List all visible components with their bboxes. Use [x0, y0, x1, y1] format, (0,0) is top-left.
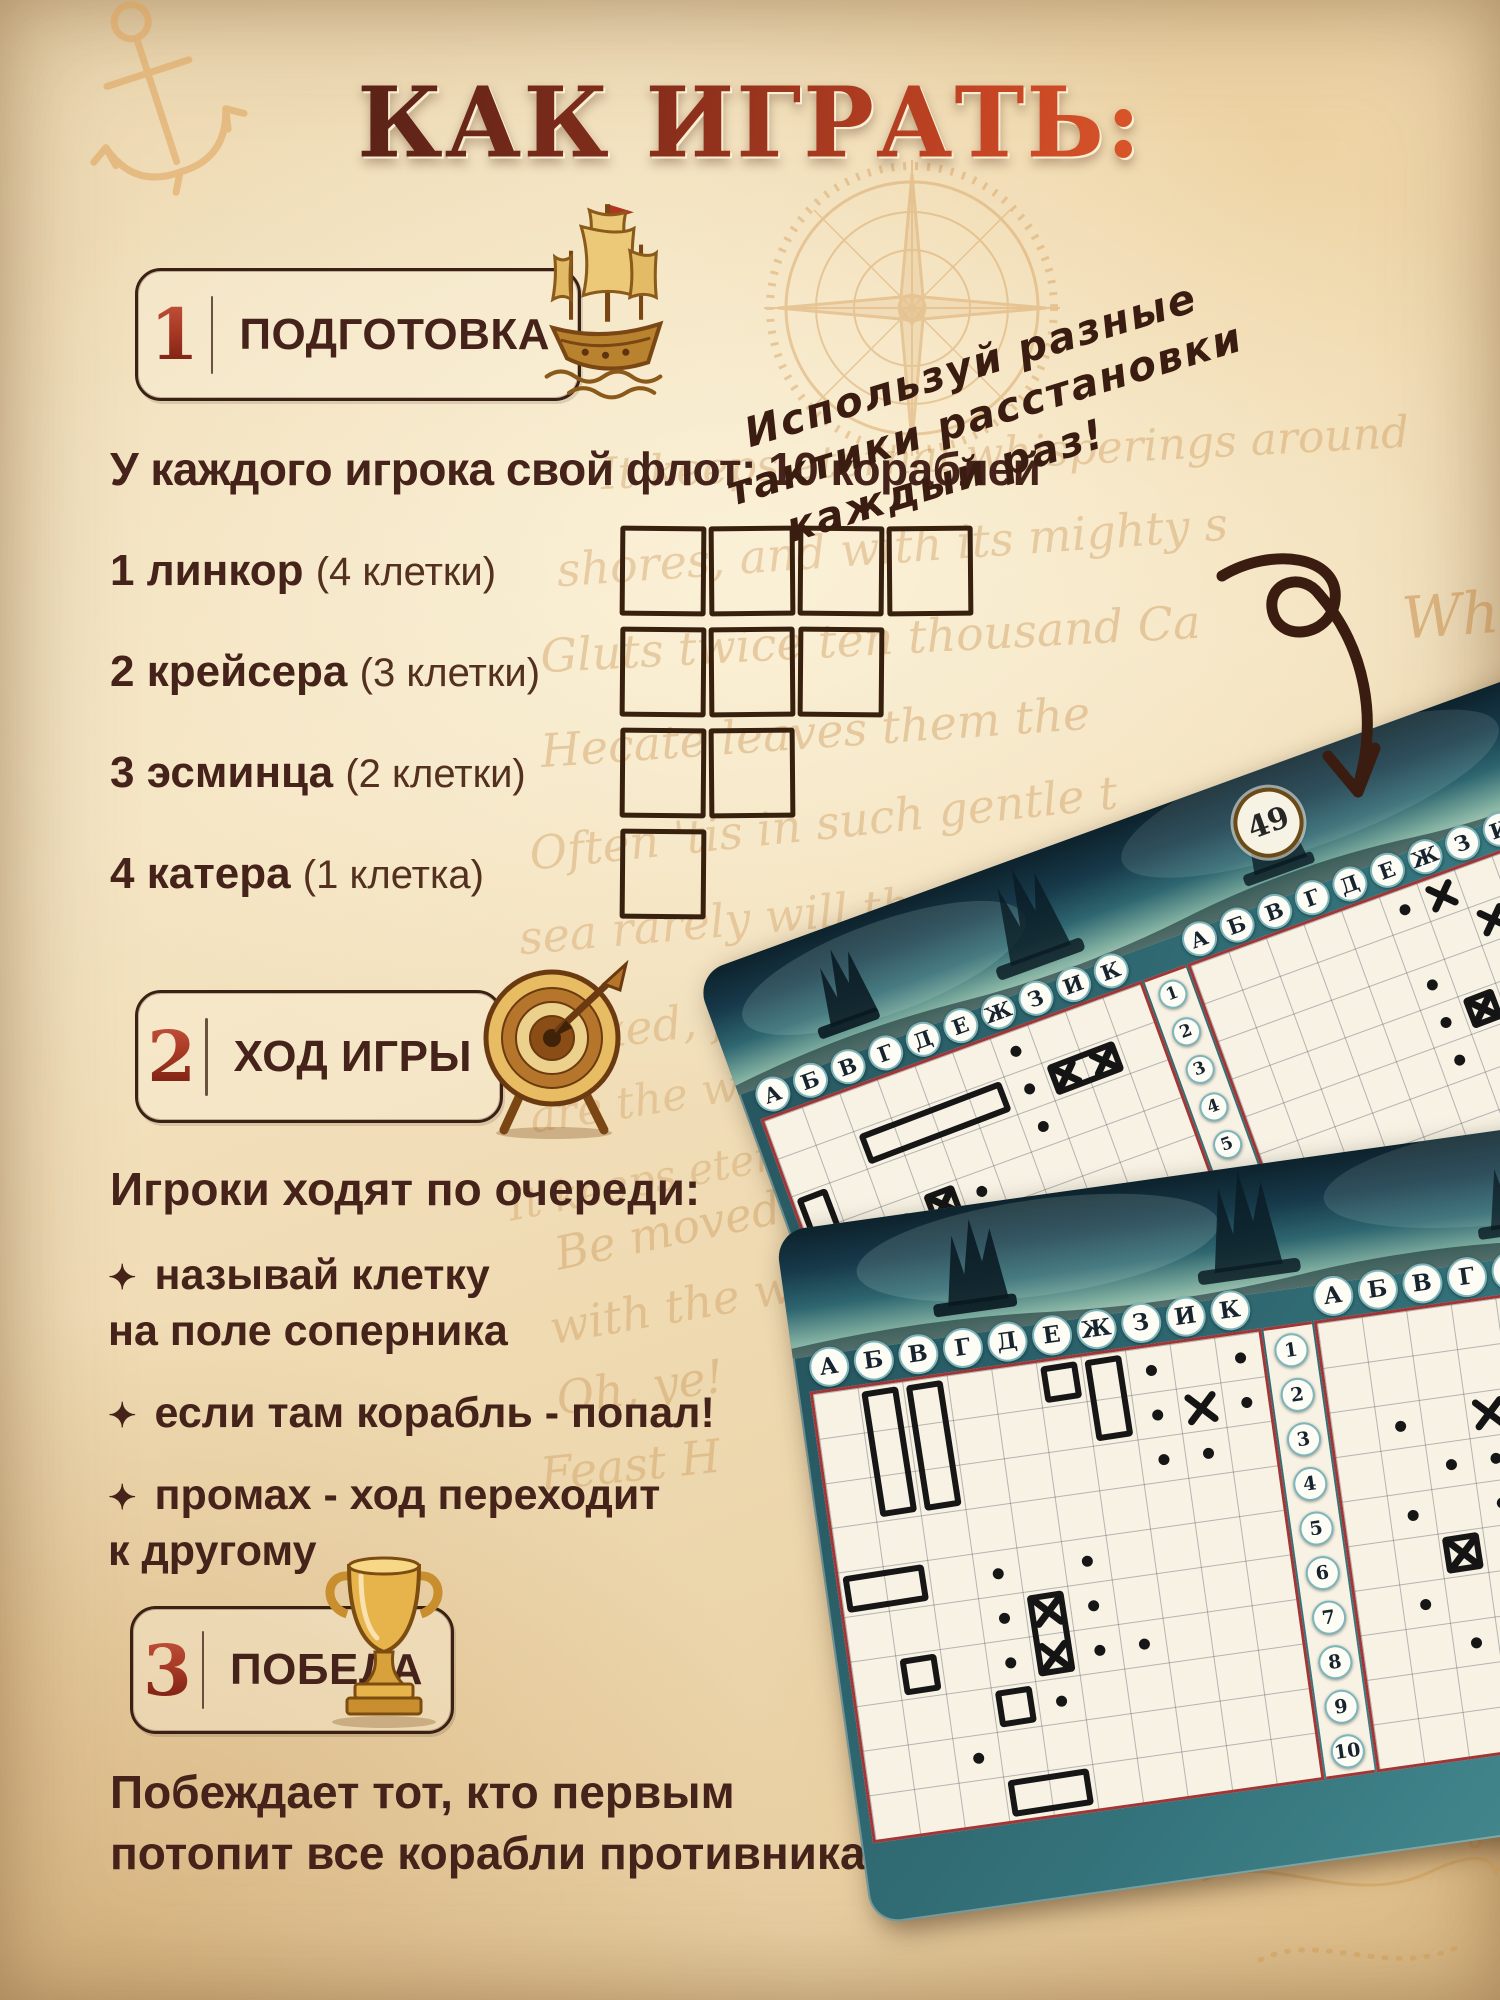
step-1-label: ПОДГОТОВКА	[239, 310, 578, 360]
row-number: 10	[1328, 1732, 1366, 1770]
miss-mark	[1009, 1044, 1023, 1058]
fleet-list: 1 линкор (4 клетки)2 крейсера (3 клетки)…	[110, 520, 973, 924]
ship-size-cells	[620, 728, 795, 818]
grid-cell	[620, 626, 707, 717]
drawn-ship	[1007, 1768, 1094, 1817]
column-letter: К	[1207, 1287, 1252, 1332]
ship-type-label: 1 линкор (4 клетки)	[110, 546, 620, 596]
column-letter: Б	[1355, 1267, 1400, 1312]
grid-cell	[887, 525, 974, 616]
miss-mark	[1081, 1555, 1093, 1567]
miss-mark	[1406, 1509, 1418, 1521]
miss-mark	[1138, 1637, 1150, 1649]
miss-mark	[975, 1184, 989, 1198]
badge-divider	[205, 1018, 207, 1096]
miss-mark	[991, 1567, 1003, 1579]
grid-cell	[620, 727, 707, 818]
drawn-ship	[899, 1653, 941, 1695]
hit-mark	[1028, 1591, 1068, 1631]
miss-mark	[1202, 1447, 1214, 1459]
diamond-bullet-icon: ✦	[108, 1259, 137, 1297]
row-number: 6	[1303, 1553, 1341, 1591]
hit-mark	[1180, 1387, 1222, 1429]
hit-mark	[1421, 875, 1462, 916]
step-1-number: 1	[138, 293, 211, 376]
how-to-play-poster: It keeps eternal whisperings aroundshore…	[0, 0, 1500, 2000]
row-number: 4	[1195, 1088, 1232, 1125]
target-icon	[466, 960, 638, 1140]
grid-cell	[620, 525, 707, 616]
row-number: 7	[1309, 1598, 1347, 1636]
column-letter: Д	[1488, 1248, 1500, 1293]
row-number: 8	[1316, 1643, 1354, 1681]
miss-mark	[972, 1752, 984, 1764]
step-1-badge: 1 ПОДГОТОВКА	[135, 268, 581, 401]
grid-cell	[620, 828, 707, 919]
step-3-number: 3	[133, 1629, 202, 1712]
game-card-bottom: АБВГДЕЖЗИК12345678910АБВГДЕЖЗИК	[775, 1091, 1500, 1925]
grid-cell	[798, 626, 885, 717]
column-letter: Г	[1444, 1254, 1489, 1299]
miss-mark	[1240, 1396, 1252, 1408]
drawn-ship	[995, 1685, 1037, 1727]
row-number: 1	[1154, 975, 1191, 1012]
miss-mark	[1004, 1656, 1016, 1668]
row-number: 1	[1272, 1331, 1310, 1369]
ship-size-cells	[620, 627, 884, 717]
step-2-badge: 2 ХОД ИГРЫ	[135, 990, 503, 1123]
miss-mark	[1425, 978, 1439, 992]
miss-mark	[1145, 1364, 1157, 1376]
drawn-ship	[1084, 1355, 1133, 1442]
diamond-bullet-icon: ✦	[108, 1397, 137, 1435]
column-letter: Е	[1029, 1312, 1074, 1357]
ship-type-label: 3 эсминца (2 клетки)	[110, 748, 620, 798]
battle-grid: АБВГДЕЖЗИК	[803, 1284, 1334, 1914]
grid-cell	[709, 727, 796, 818]
hit-mark	[1468, 1392, 1500, 1434]
miss-mark	[1055, 1695, 1067, 1707]
drawn-ship	[842, 1564, 929, 1613]
row-number: 9	[1322, 1687, 1360, 1725]
miss-mark	[1234, 1351, 1246, 1363]
miss-mark	[1470, 1636, 1482, 1648]
column-letter: В	[895, 1331, 940, 1376]
fleet-row: 4 катера (1 клетка)	[110, 823, 973, 924]
miss-mark	[998, 1612, 1010, 1624]
miss-mark	[1087, 1599, 1099, 1611]
row-number: 5	[1208, 1126, 1245, 1163]
victory-text: Побеждает тот, кто первымпотопит все кор…	[110, 1762, 881, 1883]
column-letter: В	[1399, 1260, 1444, 1305]
ship-type-label: 2 крейсера (3 клетки)	[110, 647, 620, 697]
miss-mark	[1398, 903, 1412, 917]
trophy-icon	[324, 1552, 444, 1742]
row-number: 2	[1167, 1013, 1204, 1050]
badge-divider	[211, 296, 214, 374]
miss-mark	[1439, 1015, 1453, 1029]
column-letter: А	[806, 1344, 851, 1389]
drawn-ship	[1040, 1361, 1082, 1403]
step-2-number: 2	[138, 1015, 205, 1098]
turn-rule: ✦называй клеткуна поле соперника	[108, 1248, 715, 1360]
column-letter: И	[1163, 1294, 1208, 1339]
column-letter: Г	[940, 1325, 985, 1370]
column-letter: Д	[984, 1319, 1029, 1364]
fleet-row: 2 крейсера (3 клетки)	[110, 621, 973, 722]
turn-rule: ✦если там корабль - попал!	[108, 1386, 715, 1442]
page-title: КАК ИГРАТЬ:	[0, 66, 1500, 180]
diamond-bullet-icon: ✦	[108, 1479, 137, 1517]
ship-type-label: 4 катера (1 клетка)	[110, 849, 620, 899]
ship-size-cells	[620, 829, 706, 919]
miss-mark	[1394, 1420, 1406, 1432]
miss-mark	[1496, 1496, 1500, 1508]
column-letter: Ж	[1074, 1306, 1119, 1351]
drawn-ship	[858, 1081, 1011, 1165]
manuscript-line: Whe	[1400, 576, 1500, 653]
column-letter: А	[1310, 1273, 1355, 1318]
miss-mark	[1023, 1082, 1037, 1096]
grid-cell	[709, 626, 796, 717]
row-number: 3	[1284, 1420, 1322, 1458]
column-letter: И	[1477, 807, 1500, 852]
miss-mark	[1419, 1598, 1431, 1610]
miss-mark	[1157, 1453, 1169, 1465]
turn-rules-list: ✦называй клеткуна поле соперника✦если та…	[108, 1248, 715, 1579]
miss-mark	[1093, 1644, 1105, 1656]
column-letter: З	[1118, 1300, 1163, 1345]
miss-mark	[1151, 1408, 1163, 1420]
badge-divider	[202, 1631, 204, 1709]
row-number: 2	[1278, 1375, 1316, 1413]
miss-mark	[1036, 1119, 1050, 1133]
ship-icon	[540, 198, 668, 406]
arrow-icon	[1208, 552, 1408, 822]
row-number: 5	[1297, 1509, 1335, 1547]
miss-mark	[1489, 1452, 1500, 1464]
turn-heading: Игроки ходят по очереди:	[110, 1162, 700, 1216]
row-number: 3	[1181, 1051, 1218, 1088]
row-number: 4	[1291, 1464, 1329, 1502]
hit-mark	[1034, 1636, 1074, 1676]
miss-mark	[1445, 1458, 1457, 1470]
miss-mark	[1453, 1053, 1467, 1067]
hit-mark	[1443, 1533, 1483, 1573]
step-2-label: ХОД ИГРЫ	[234, 1032, 500, 1082]
column-letter: Б	[851, 1337, 896, 1382]
fleet-row: 3 эсминца (2 клетки)	[110, 722, 973, 823]
hit-mark	[1473, 899, 1500, 940]
